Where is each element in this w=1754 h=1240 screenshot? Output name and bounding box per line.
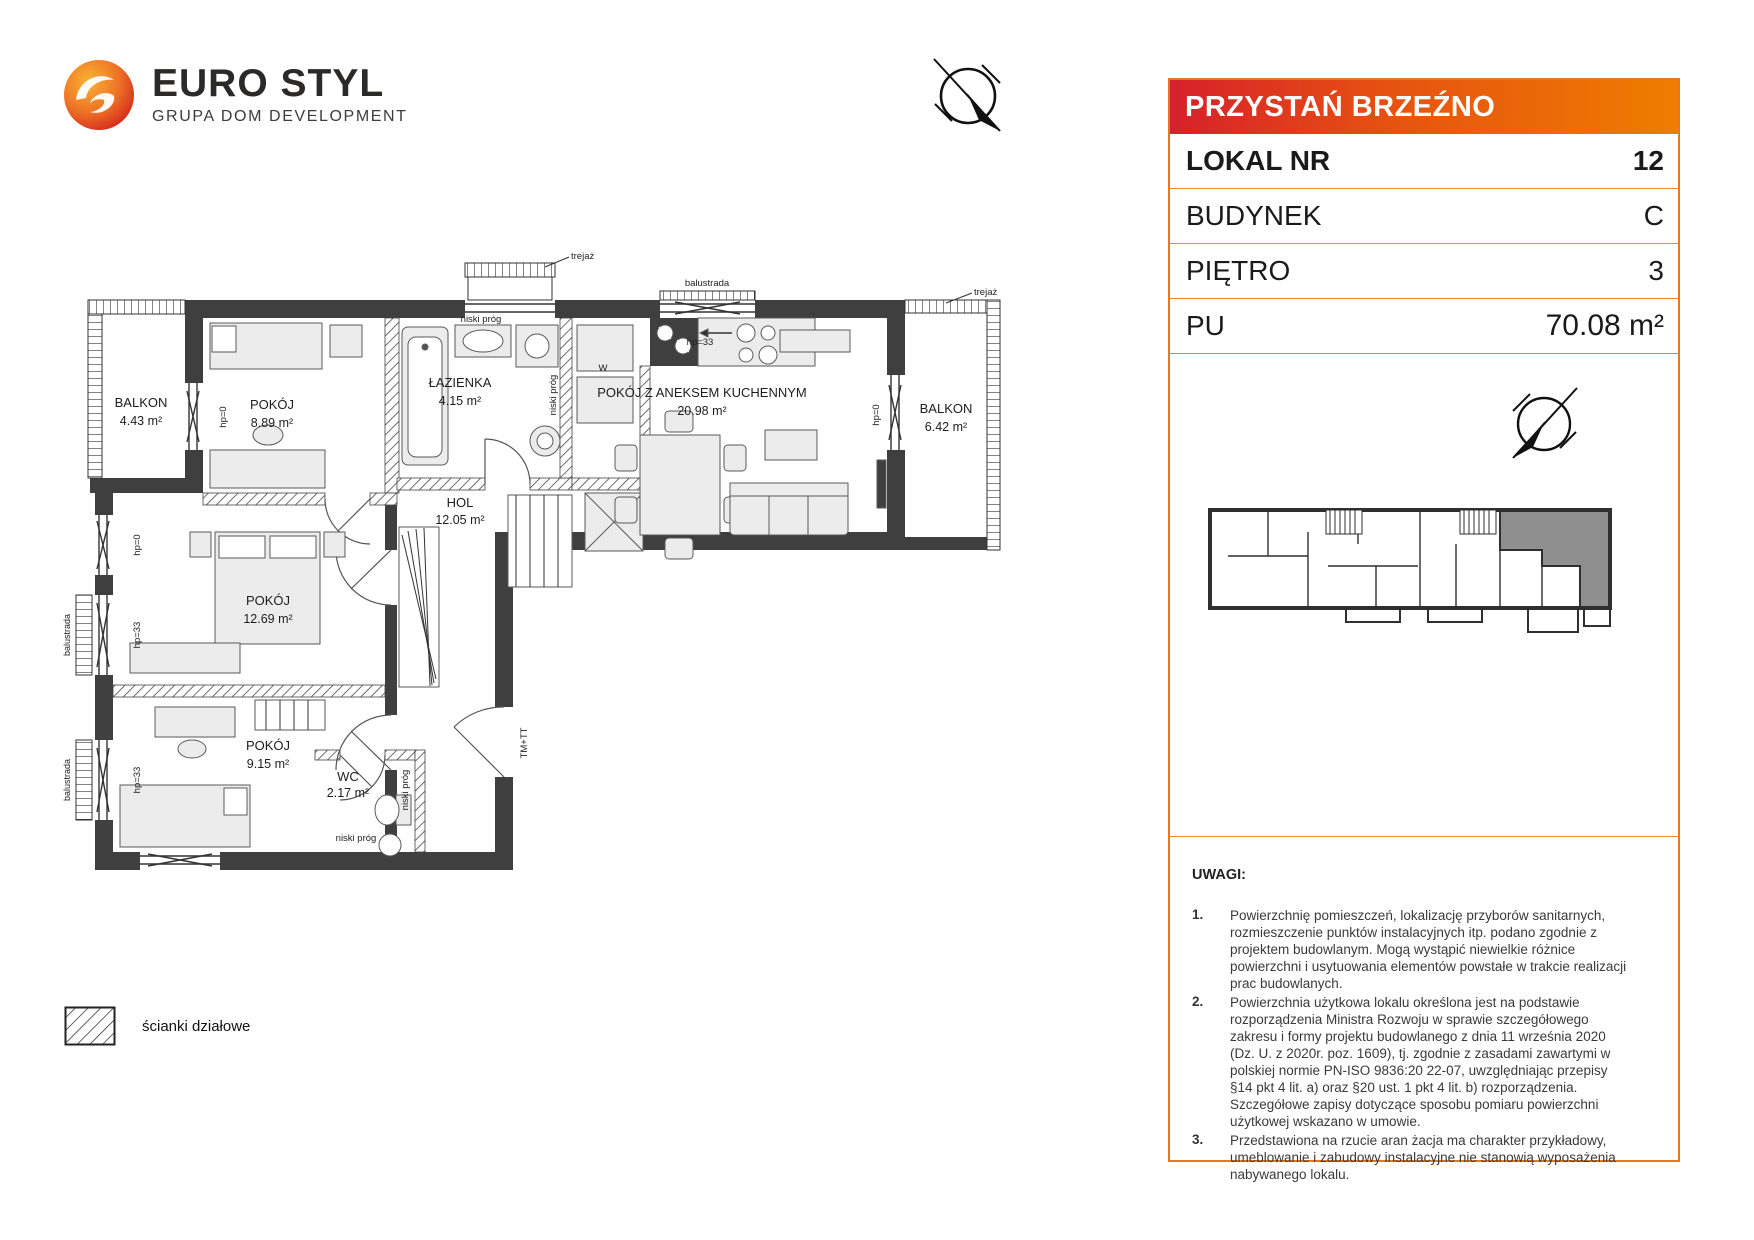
spec-row-lokal: LOKAL NR 12 xyxy=(1170,134,1678,189)
logo-brand-text: EURO STYL xyxy=(152,64,408,103)
balustrada-label-top: balustrada xyxy=(685,278,730,289)
notes-section: UWAGI: 1. Powierzchnię pomieszczeń, loka… xyxy=(1170,837,1678,1183)
company-logo: EURO STYL GRUPA DOM DEVELOPMENT xyxy=(62,58,408,132)
spec-row-budynek: BUDYNEK C xyxy=(1170,189,1678,244)
room-label-balkon-right: BALKON xyxy=(920,401,973,416)
legend: ścianki działowe xyxy=(64,1006,250,1046)
svg-text:6.42 m²: 6.42 m² xyxy=(925,420,967,434)
room-label-balkon-left: BALKON xyxy=(115,395,168,410)
note-item-2: 2. Powierzchnia użytkowa lokalu określon… xyxy=(1192,994,1630,1130)
svg-text:12.69 m²: 12.69 m² xyxy=(243,612,292,626)
niski-prog-label-3: niski próg xyxy=(400,770,411,811)
svg-text:20.98 m²: 20.98 m² xyxy=(677,404,726,418)
balustrada-label-left-1: balustrada xyxy=(62,614,72,656)
notes-title: UWAGI: xyxy=(1192,867,1630,883)
hp0-label-2: hp=0 xyxy=(871,404,882,425)
project-name-header: PRZYSTAŃ BRZEŹNO xyxy=(1170,80,1678,134)
note-item-1: 1. Powierzchnię pomieszczeń, lokalizację… xyxy=(1192,907,1630,992)
hp33-label-2: hp=33 xyxy=(132,767,143,794)
floor-plan-sheet: EURO STYL GRUPA DOM DEVELOPMENT xyxy=(0,0,1754,1240)
svg-text:2.17 m²: 2.17 m² xyxy=(327,786,369,800)
spec-value: C xyxy=(1644,200,1664,232)
room-label-wc: WC xyxy=(337,769,359,784)
hp33-label-1: hp=33 xyxy=(132,622,143,649)
logo-tagline-text: GRUPA DOM DEVELOPMENT xyxy=(152,108,408,126)
north-compass-icon xyxy=(925,48,1011,140)
room-label-hol: HOL xyxy=(447,495,474,510)
hp0-label-3: hp=0 xyxy=(132,534,143,555)
niski-prog-label-1: niski próg xyxy=(461,314,502,325)
highlighted-unit xyxy=(1500,510,1610,608)
niski-prog-label-4: niski próg xyxy=(336,833,377,844)
room-label-pokoj-3: POKÓJ xyxy=(246,738,290,753)
entry-label: TM+TT xyxy=(519,727,530,758)
spec-row-pu: PU 70.08 m² xyxy=(1170,299,1678,354)
trejaz-label-right: trejaż xyxy=(974,287,997,298)
legend-label: ścianki działowe xyxy=(142,1018,250,1035)
spec-value: 3 xyxy=(1648,255,1664,287)
spec-label: LOKAL NR xyxy=(1186,145,1330,177)
spec-label: BUDYNEK xyxy=(1186,200,1321,232)
svg-text:4.43 m²: 4.43 m² xyxy=(120,414,162,428)
note-item-3: 3. Przedstawiona na rzucie aran żacja ma… xyxy=(1192,1132,1630,1183)
svg-text:4.15 m²: 4.15 m² xyxy=(439,394,481,408)
room-label-pokoj-2: POKÓJ xyxy=(246,593,290,608)
unit-info-panel: PRZYSTAŃ BRZEŹNO LOKAL NR 12 BUDYNEK C P… xyxy=(1168,78,1680,1162)
building-location-cell xyxy=(1170,354,1678,837)
niski-prog-label-2: niski próg xyxy=(548,375,559,416)
svg-text:12.05 m²: 12.05 m² xyxy=(435,513,484,527)
hp33-label-3: hp=33 xyxy=(687,337,714,348)
spec-row-pietro: PIĘTRO 3 xyxy=(1170,244,1678,299)
spec-label: PIĘTRO xyxy=(1186,255,1290,287)
spec-label: PU xyxy=(1186,310,1225,342)
panel-compass-icon xyxy=(1502,378,1586,466)
building-overview-plan xyxy=(1198,496,1638,686)
washer-label: W xyxy=(599,363,608,374)
partition-wall-swatch xyxy=(64,1006,116,1046)
eurostyl-logo-icon xyxy=(62,58,136,132)
apartment-floor-plan: BALKON 4.43 m² POKÓJ 8.89 m² ŁAZIENKA 4.… xyxy=(40,245,1020,922)
svg-text:8.89 m²: 8.89 m² xyxy=(251,416,293,430)
spec-value: 70.08 m² xyxy=(1546,309,1664,343)
room-label-salon: POKÓJ Z ANEKSEM KUCHENNYM xyxy=(597,385,806,400)
spec-value: 12 xyxy=(1633,145,1664,177)
room-label-lazienka: ŁAZIENKA xyxy=(429,375,492,390)
room-label-pokoj-1: POKÓJ xyxy=(250,397,294,412)
trejaz-label-top: trejaż xyxy=(571,251,594,262)
balustrada-label-left-2: balustrada xyxy=(62,759,72,801)
hp0-label-1: hp=0 xyxy=(218,406,229,427)
svg-text:9.15 m²: 9.15 m² xyxy=(247,757,289,771)
